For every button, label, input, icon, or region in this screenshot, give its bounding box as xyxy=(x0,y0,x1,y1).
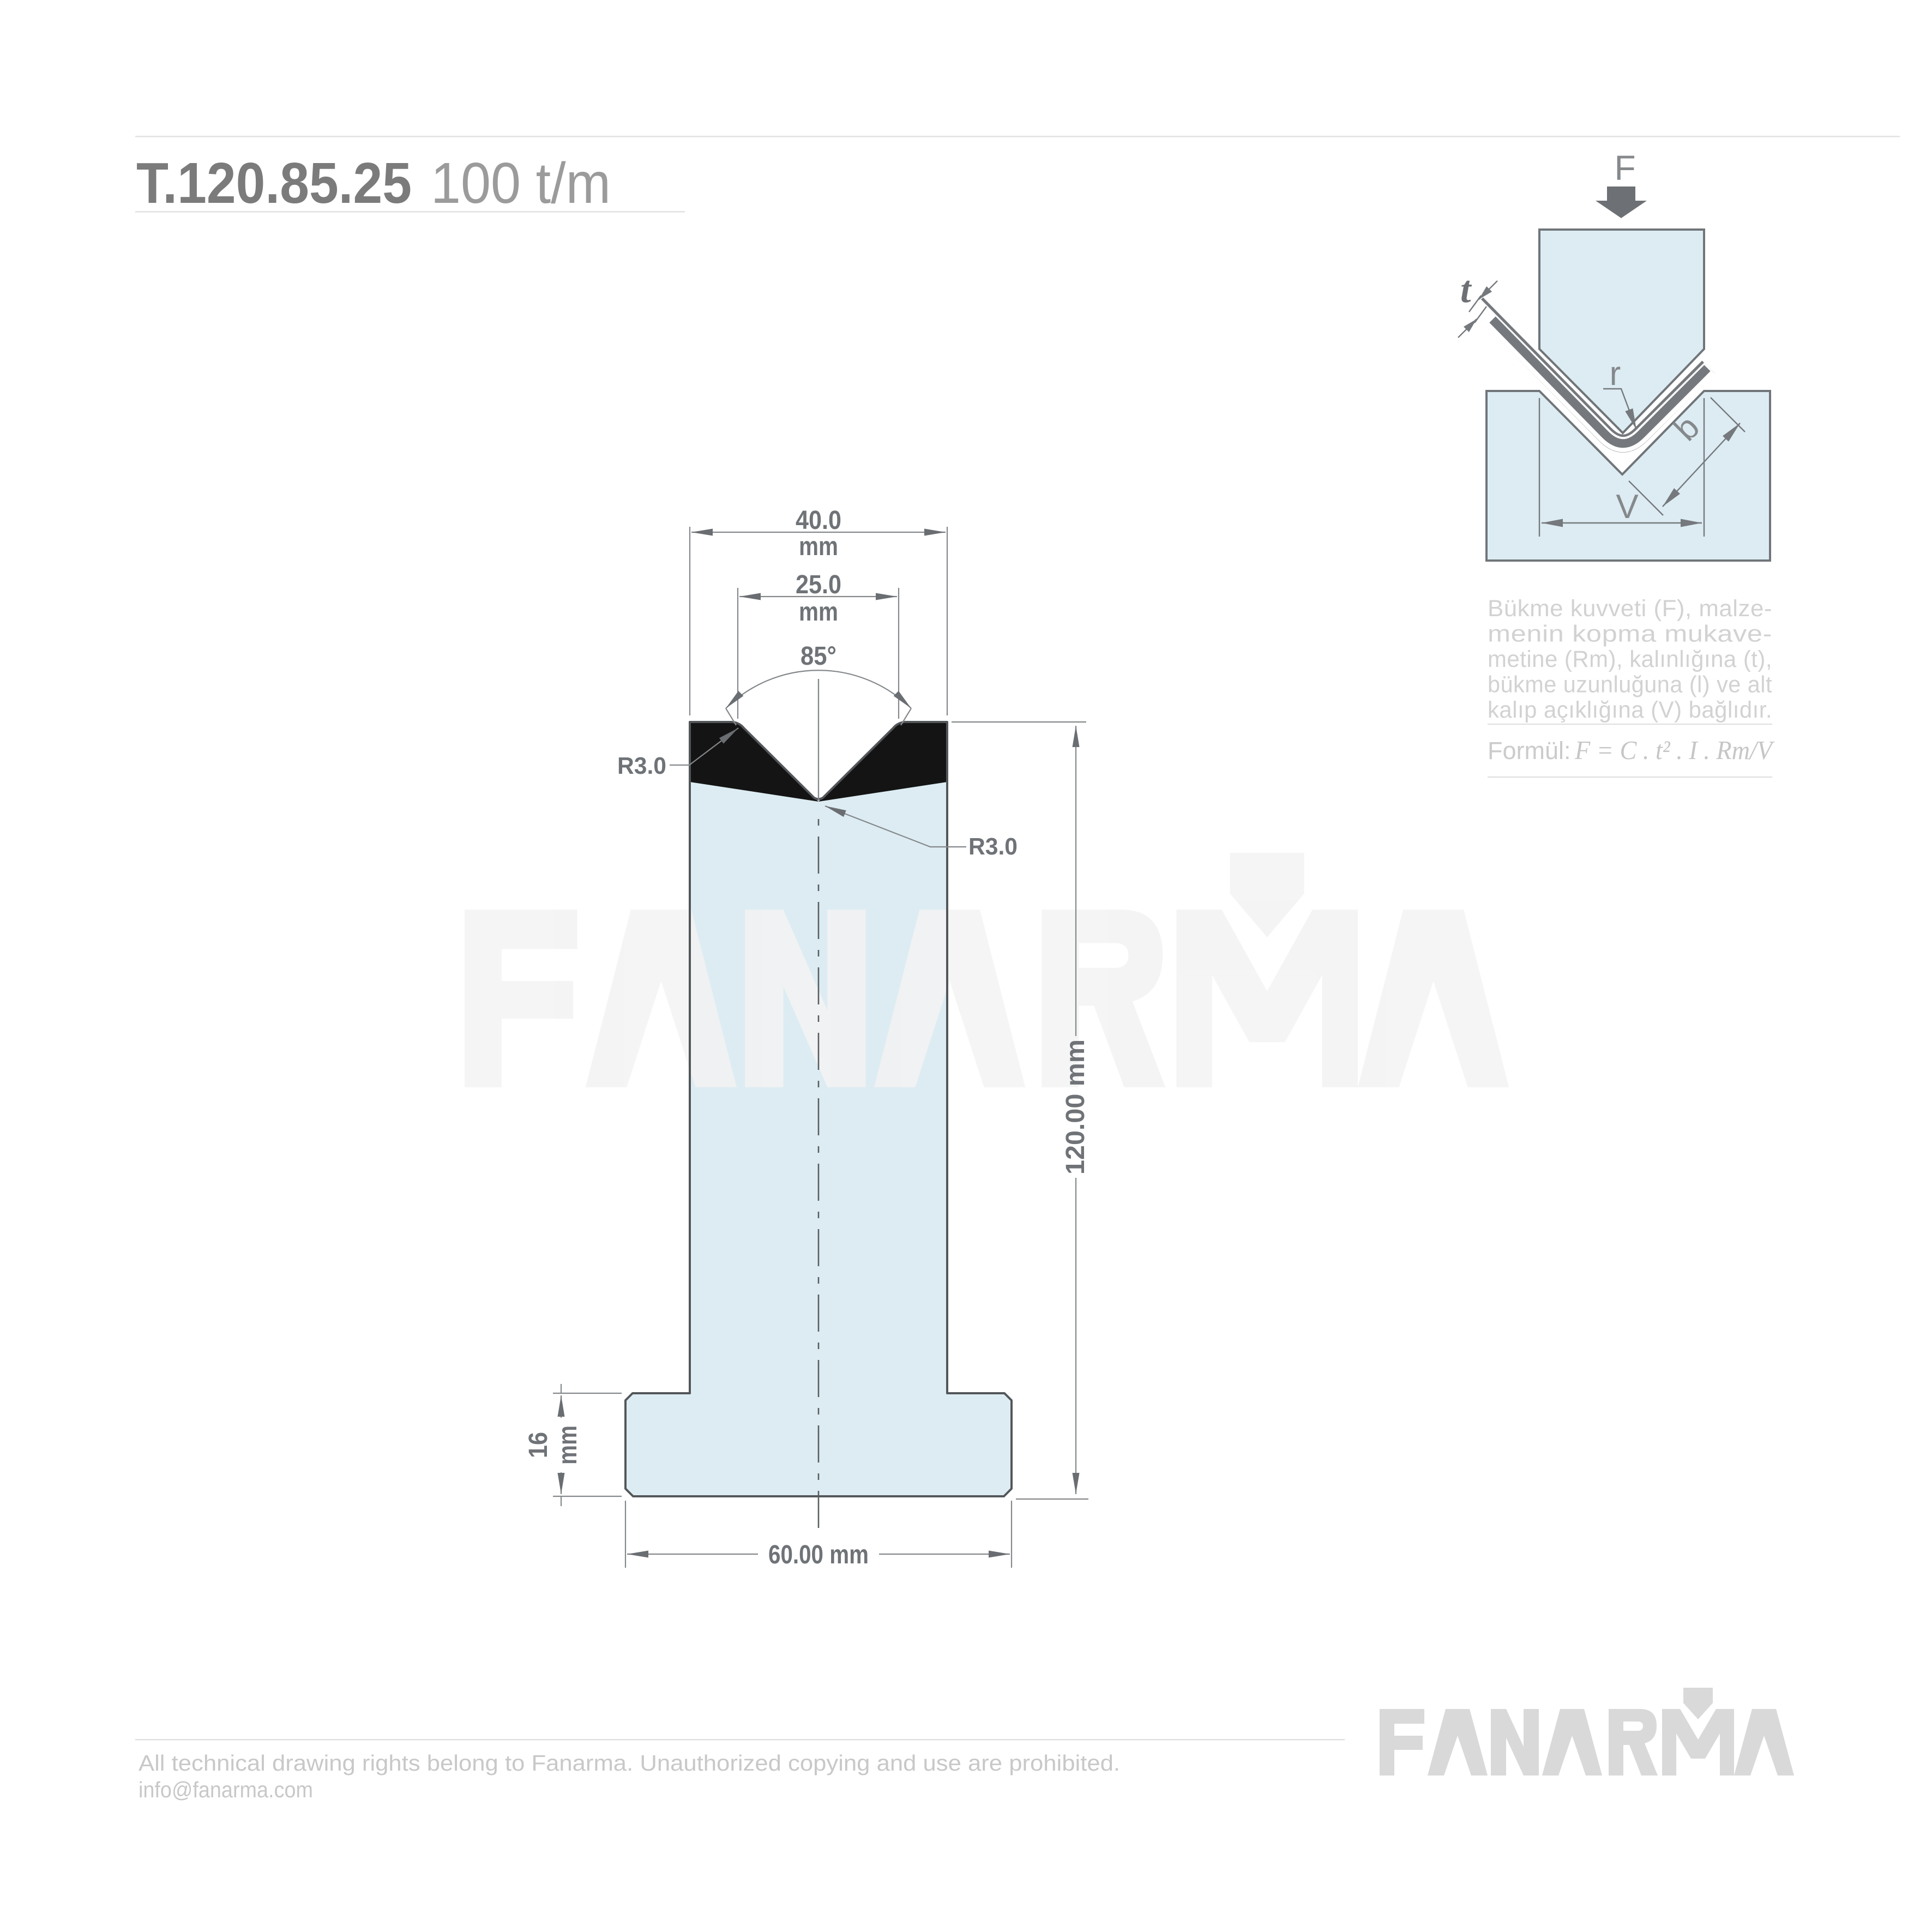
svg-text:R3.0: R3.0 xyxy=(968,833,1018,860)
svg-text:r: r xyxy=(1610,355,1621,393)
svg-text:menin kopma mukave-: menin kopma mukave- xyxy=(1488,621,1772,647)
svg-text:120.00 mm: 120.00 mm xyxy=(1061,1039,1090,1175)
svg-text:t: t xyxy=(1460,269,1472,311)
svg-text:All technical drawing rights b: All technical drawing rights belong to F… xyxy=(139,1750,1120,1775)
svg-text:F: F xyxy=(1614,148,1635,188)
svg-text:bükme uzunluğuna (l) ve alt: bükme uzunluğuna (l) ve alt xyxy=(1488,672,1772,698)
svg-text:mm: mm xyxy=(799,532,838,561)
svg-text:60.00 mm: 60.00 mm xyxy=(768,1540,869,1569)
svg-text:R3.0: R3.0 xyxy=(617,753,666,779)
svg-text:25.0: 25.0 xyxy=(796,570,841,599)
svg-text:info@fanarma.com: info@fanarma.com xyxy=(139,1777,313,1802)
svg-text:100 t/m: 100 t/m xyxy=(431,151,611,215)
svg-text:metine (Rm), kalınlığına (t),: metine (Rm), kalınlığına (t), xyxy=(1488,646,1772,672)
svg-text:kalıp açıklığına (V) bağlıdır.: kalıp açıklığına (V) bağlıdır. xyxy=(1488,697,1772,723)
svg-text:Formül:: Formül: xyxy=(1488,737,1571,765)
svg-text:T.120.85.25: T.120.85.25 xyxy=(136,151,412,215)
svg-text:F = C . t² . I . Rm/V: F = C . t² . I . Rm/V xyxy=(1574,735,1775,765)
svg-text:85°: 85° xyxy=(801,642,836,671)
svg-text:mm: mm xyxy=(553,1425,582,1465)
svg-text:16: 16 xyxy=(524,1432,553,1458)
svg-text:40.0: 40.0 xyxy=(796,506,841,535)
svg-text:Bükme kuvveti (F), malze-: Bükme kuvveti (F), malze- xyxy=(1488,595,1772,622)
svg-text:mm: mm xyxy=(799,598,838,627)
svg-text:V: V xyxy=(1616,488,1639,526)
